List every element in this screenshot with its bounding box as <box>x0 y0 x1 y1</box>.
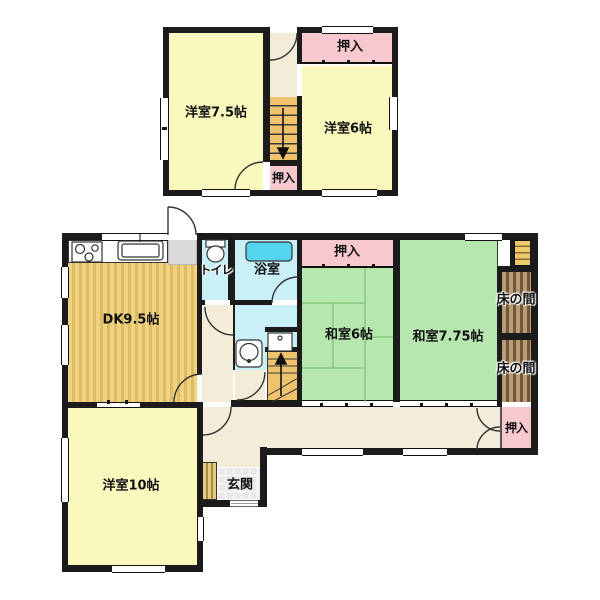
wall <box>265 327 298 332</box>
wall <box>197 402 203 572</box>
wall <box>265 347 298 352</box>
sliding-door-tick <box>470 403 473 407</box>
wall <box>231 400 267 407</box>
door-opening <box>205 300 230 305</box>
sliding-door-tick <box>322 264 325 268</box>
wall <box>497 266 531 272</box>
veranda-hall <box>262 407 500 448</box>
wall <box>260 447 267 507</box>
sliding-door-tick <box>347 264 350 268</box>
storage-shelf <box>514 240 531 266</box>
room-washitsu-7-75 <box>400 240 497 402</box>
sliding-door-tick <box>107 400 110 404</box>
wall <box>297 240 302 402</box>
wall <box>497 333 531 340</box>
room-label: 洋室6帖 <box>324 123 372 136</box>
sliding-door-wall <box>400 400 497 407</box>
room-label: 押入 <box>337 41 363 54</box>
back-door-opening <box>168 233 197 240</box>
sliding-door-tick <box>125 400 128 404</box>
hallway-lower <box>235 370 265 402</box>
room-label: 和室6帖 <box>325 329 373 342</box>
window <box>61 267 69 298</box>
window <box>102 233 168 241</box>
sliding-door-track <box>500 407 502 451</box>
door-opening <box>203 402 231 407</box>
sliding-door-tick <box>370 403 373 407</box>
sliding-door-tick <box>372 264 375 268</box>
room-label: 床の間 <box>496 294 535 307</box>
room-label: トイレ <box>199 264 232 276</box>
staircase-1f <box>267 352 298 402</box>
entrance-step <box>202 462 217 500</box>
room-label: DK9.5帖 <box>103 314 160 327</box>
room-label: 洋室7.5帖 <box>185 107 247 120</box>
window <box>61 438 69 470</box>
window <box>403 448 447 456</box>
room-label: 浴室 <box>254 264 280 277</box>
sliding-door-tick <box>420 403 423 407</box>
window <box>61 325 69 365</box>
room-label: 押入 <box>272 172 294 184</box>
room-label: 和室7.75帖 <box>412 331 483 344</box>
room-label: 洋室10帖 <box>102 480 159 493</box>
sliding-door-tick <box>345 403 348 407</box>
sliding-door-tick <box>320 403 323 407</box>
sliding-door <box>97 402 140 408</box>
wall <box>267 400 302 407</box>
window <box>197 517 204 541</box>
sliding-door-tick <box>445 403 448 407</box>
window <box>465 233 502 241</box>
wall <box>497 400 502 407</box>
floor-plan-canvas: 洋室7.5帖 洋室6帖 押入 押入 DK9.5帖 トイレ 浴室 押入 和室6帖 … <box>0 0 600 600</box>
room-label: 床の間 <box>496 363 535 376</box>
refrigerator-space <box>168 238 197 265</box>
wall <box>531 233 538 455</box>
room-label: 玄関 <box>227 479 253 492</box>
door-opening <box>272 300 297 305</box>
room-label: 押入 <box>505 422 527 434</box>
entrance-door <box>230 500 258 507</box>
wall <box>233 305 235 370</box>
window <box>61 470 69 502</box>
window <box>302 448 363 456</box>
wall <box>393 240 400 402</box>
kitchen-counter <box>68 240 168 263</box>
hallway-strip <box>202 305 233 402</box>
window <box>112 565 165 573</box>
room-label: 押入 <box>334 246 360 259</box>
door-opening <box>197 374 202 402</box>
